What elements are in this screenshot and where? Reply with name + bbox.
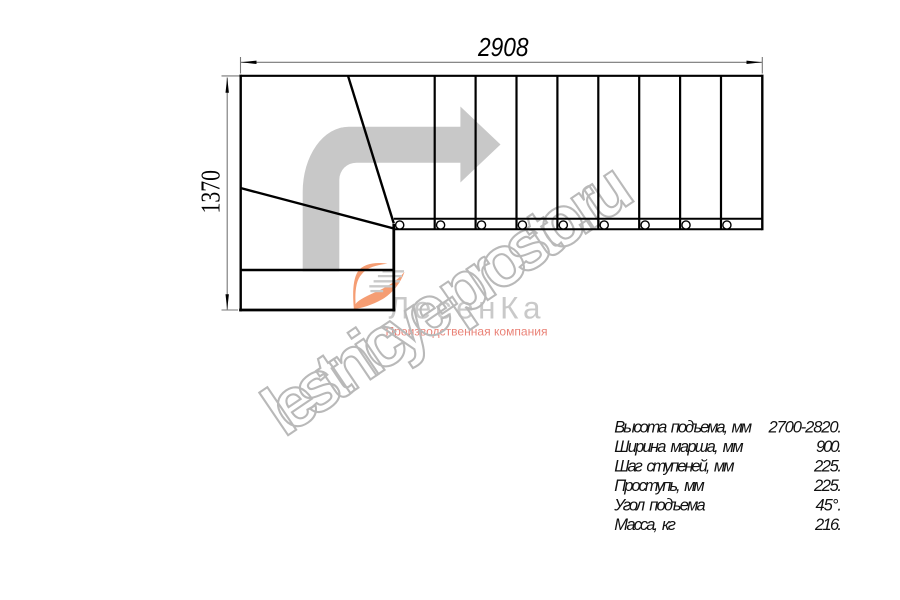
svg-text:2700-2820.: 2700-2820. bbox=[768, 419, 843, 437]
svg-text:216.: 216. bbox=[814, 516, 842, 534]
svg-text:45°.: 45°. bbox=[816, 497, 843, 515]
svg-text:1370: 1370 bbox=[195, 170, 226, 214]
svg-text:Шаг ступеней, мм: Шаг ступеней, мм bbox=[614, 458, 734, 476]
svg-text:225.: 225. bbox=[813, 458, 842, 476]
svg-text:Угол подъема: Угол подъема bbox=[613, 497, 705, 515]
svg-text:900.: 900. bbox=[816, 438, 842, 456]
svg-text:225.: 225. bbox=[813, 477, 842, 495]
svg-text:Высота подъема, мм: Высота подъема, мм bbox=[614, 419, 752, 437]
svg-text:Масса, кг: Масса, кг bbox=[614, 516, 676, 534]
svg-text:Ширина марша, мм: Ширина марша, мм bbox=[614, 438, 743, 456]
svg-text:2908: 2908 bbox=[477, 34, 529, 62]
svg-text:Проступь, мм: Проступь, мм bbox=[614, 477, 704, 495]
